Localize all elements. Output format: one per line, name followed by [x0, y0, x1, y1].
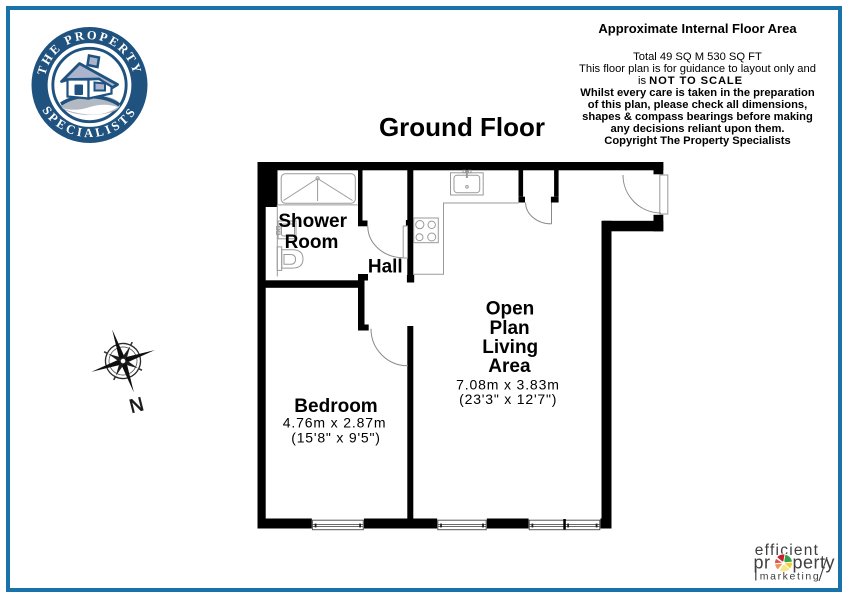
svg-text:Area: Area	[488, 356, 531, 377]
svg-text:Open: Open	[486, 299, 535, 320]
svg-text:Room: Room	[285, 232, 339, 253]
svg-text:Hall: Hall	[368, 257, 403, 278]
svg-text:Shower: Shower	[278, 211, 347, 232]
svg-text:(23'3" x 12'7"): (23'3" x 12'7")	[459, 391, 557, 407]
svg-text:marketing: marketing	[760, 570, 821, 582]
svg-text:4.76m x 2.87m: 4.76m x 2.87m	[283, 415, 387, 431]
svg-text:7.08m x 3.83m: 7.08m x 3.83m	[456, 376, 560, 392]
svg-text:Living: Living	[482, 337, 538, 358]
svg-text:(15'8" x 9'5"): (15'8" x 9'5")	[291, 430, 381, 446]
svg-text:Plan: Plan	[490, 318, 530, 339]
